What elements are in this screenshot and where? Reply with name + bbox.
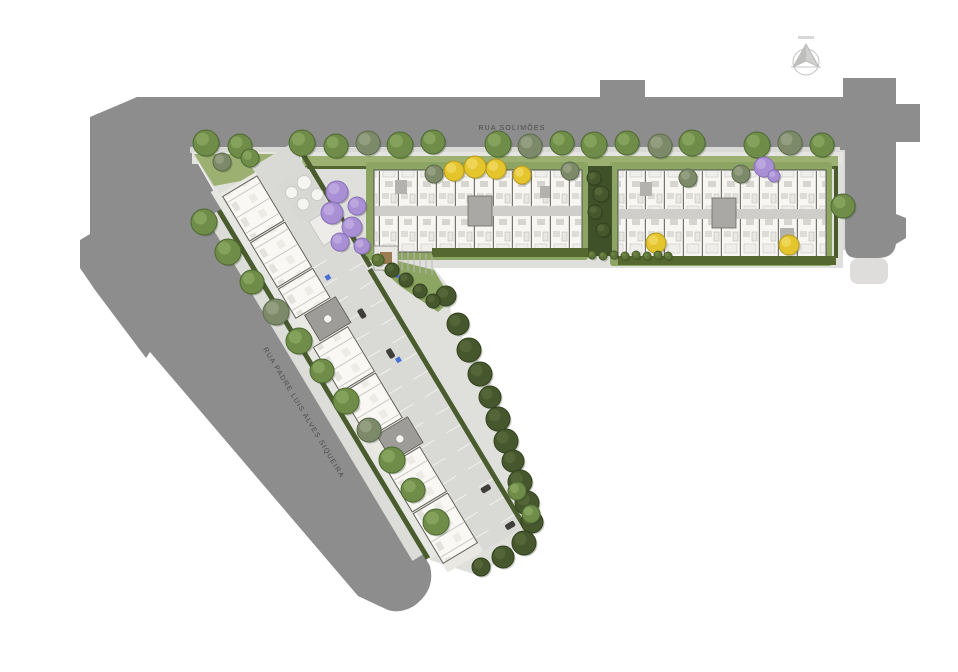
north-arrow-icon [791,36,821,75]
tree-highlight [359,133,371,145]
tree-highlight [427,167,436,176]
tree-highlight [834,196,846,208]
tree-highlight [424,132,436,144]
tree-highlight [769,171,775,177]
tree-highlight [356,240,364,248]
tree-highlight [488,161,498,171]
tree-highlight [336,391,349,404]
block2-core [712,198,736,228]
tree-highlight [488,134,501,147]
tree-highlight [524,507,533,516]
tree-highlight [218,242,231,255]
tree-highlight [756,159,766,169]
tree-highlight [497,431,509,443]
tree-highlight [390,135,403,148]
block1-core [468,196,492,226]
tree-highlight [504,452,515,463]
tree-highlight [590,206,597,213]
tree-highlight [350,199,359,208]
building-block-2 [610,162,836,266]
block2-roof-detail [640,182,652,196]
tree-highlight [243,272,255,284]
tree-highlight [813,135,825,147]
tree-highlight [438,288,448,298]
tree-highlight [401,274,408,281]
tree-highlight [734,167,743,176]
tree-highlight [360,420,372,432]
tree-highlight [781,237,791,247]
tree-highlight [648,235,658,245]
tree-highlight [292,133,305,146]
tree-highlight [489,409,501,421]
tree-highlight [589,172,596,179]
tree-highlight [328,183,339,194]
tree-highlight [681,171,690,180]
block1-roof-detail [540,186,550,198]
tree-highlight [682,133,695,146]
tree-highlight [665,253,669,257]
tree-highlight [651,136,663,148]
tree-highlight [589,252,593,256]
tree-highlight [611,252,615,256]
tree-highlight [521,136,533,148]
tree-highlight [428,295,435,302]
block1-roof-detail [395,180,407,194]
tree-highlight [415,285,422,292]
tree-highlight [243,151,252,160]
tree-highlight [266,302,279,315]
tree-highlight [446,163,456,173]
tree-highlight [344,219,354,229]
tree-highlight [474,560,483,569]
tree-highlight [515,168,524,177]
tree-highlight [595,188,603,196]
tree-highlight [196,133,209,146]
tree-highlight [387,264,394,271]
tree-highlight [600,253,604,257]
tree-highlight [481,388,492,399]
tree-highlight [655,252,659,256]
tree-highlight [323,204,334,215]
tree-highlight [633,252,637,256]
tree-highlight [553,133,565,145]
tree-highlight [194,212,207,225]
street-label-top: RUA SOLIMÕES [478,123,545,132]
tree-highlight [449,315,460,326]
tree-highlight [494,548,505,559]
tree-highlight [327,136,339,148]
tree-highlight [618,133,630,145]
tree-highlight [622,253,626,257]
tree-highlight [598,224,605,231]
tree-highlight [471,364,483,376]
tree-highlight [510,484,519,493]
tree-highlight [404,480,416,492]
tree-highlight [373,255,379,261]
tree-highlight [584,135,597,148]
tree-highlight [333,235,342,244]
tree-highlight [515,533,527,545]
tree-highlight [644,253,648,257]
tree-highlight [460,340,472,352]
sidewalk-below-stem [850,258,888,284]
tree-highlight [747,135,760,148]
tree-highlight [231,136,243,148]
tree-highlight [215,155,224,164]
tree-highlight [563,164,572,173]
tree-highlight [781,133,793,145]
tree-highlight [382,450,395,463]
tree-highlight [313,361,325,373]
tree-highlight [289,331,302,344]
block1-bottom-hedge [432,248,588,257]
tree-highlight [466,158,477,169]
tree-highlight [426,512,439,525]
site-plan-canvas: RUA SOLIMÕES RUA PADRE LUIS ALVES SIQUEI… [0,0,958,672]
